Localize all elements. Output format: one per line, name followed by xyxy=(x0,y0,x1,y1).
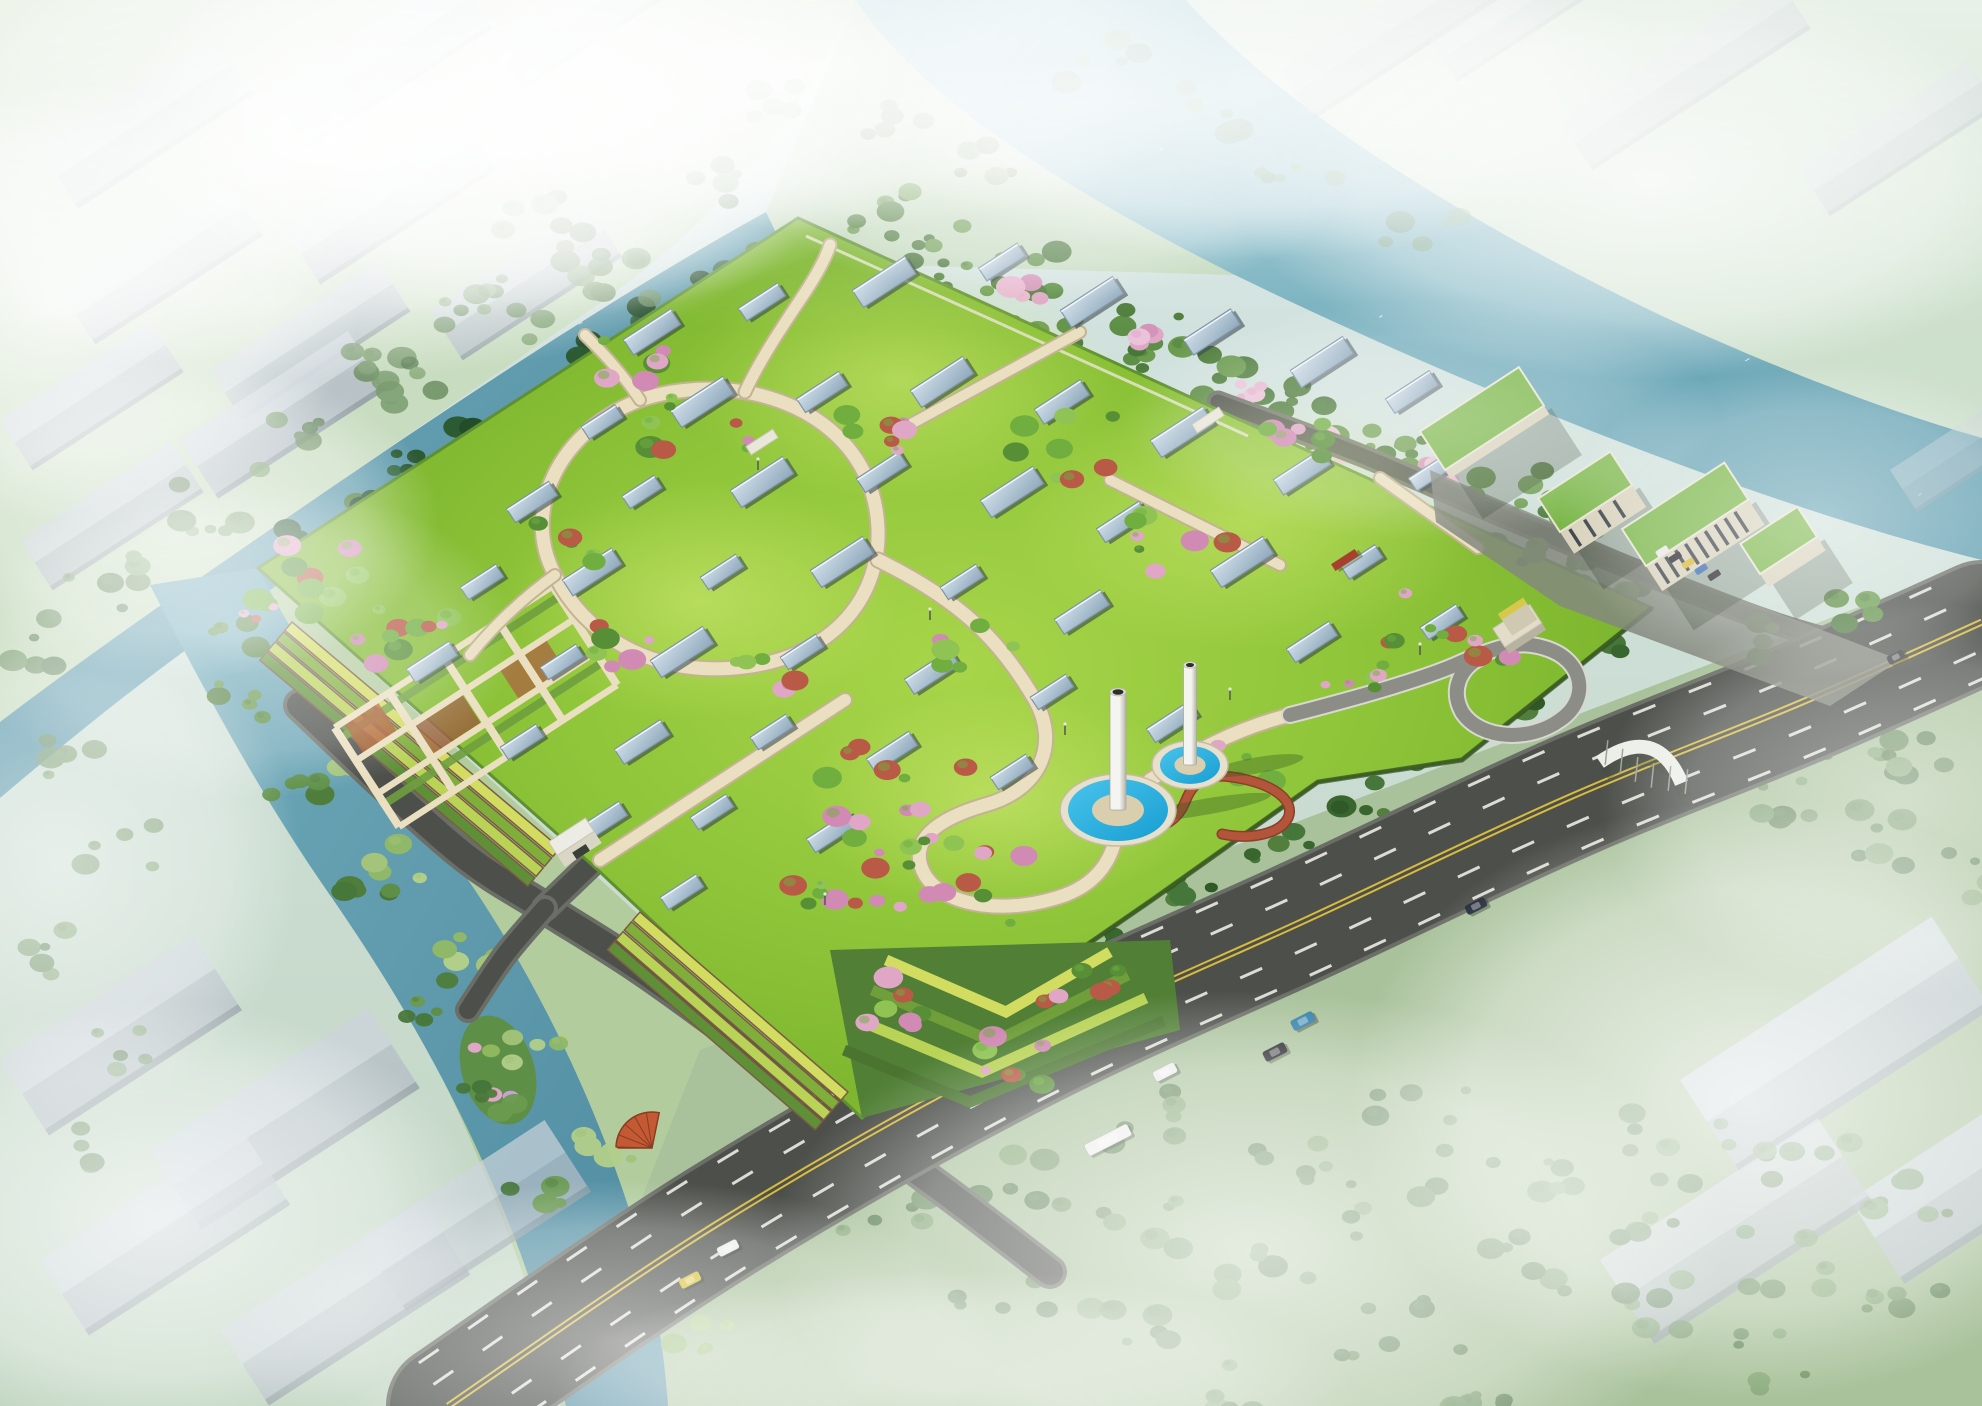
tree-blob xyxy=(1425,624,1436,632)
tree-blob xyxy=(453,932,467,942)
aerial-park-rendering xyxy=(0,0,1982,1406)
tree-blob xyxy=(874,849,884,857)
tree-blob xyxy=(943,835,964,851)
tree-highlight xyxy=(1075,965,1084,972)
tree-highlight xyxy=(668,394,673,398)
tree-highlight xyxy=(859,1016,870,1024)
tree-blob xyxy=(1054,408,1077,425)
tree-blob xyxy=(574,1136,601,1156)
tree-blob xyxy=(730,418,743,427)
tree-highlight xyxy=(1401,589,1407,593)
light-head xyxy=(1063,722,1066,725)
tree-blob xyxy=(487,1103,512,1121)
tree-blob xyxy=(1331,801,1349,814)
light-head xyxy=(928,607,931,610)
tree-blob xyxy=(664,402,676,411)
tree-highlight xyxy=(598,371,610,380)
tree-highlight xyxy=(886,437,893,442)
tree-highlight xyxy=(552,1038,561,1044)
tree-highlight xyxy=(1128,514,1138,521)
tree-highlight xyxy=(389,836,401,845)
tree-highlight xyxy=(531,518,540,524)
tree-highlight xyxy=(783,877,796,886)
tree-blob xyxy=(931,639,959,660)
light-head xyxy=(823,892,826,895)
tree-highlight xyxy=(827,808,840,818)
tree-blob xyxy=(1010,846,1037,866)
tower-cylinder xyxy=(1110,692,1126,810)
tree-highlight xyxy=(401,1011,409,1017)
tree-highlight xyxy=(903,840,913,847)
tree-blob xyxy=(970,618,990,633)
tree-blob xyxy=(1359,805,1373,815)
tree-highlight xyxy=(893,447,899,451)
tree-highlight xyxy=(412,997,419,1002)
tree-blob xyxy=(361,853,387,873)
tree-blob xyxy=(602,1144,615,1154)
tree-blob xyxy=(1090,983,1114,1001)
tower-opening xyxy=(1186,663,1194,667)
tree-blob xyxy=(1365,776,1385,791)
tree-highlight xyxy=(644,417,652,423)
tree-blob xyxy=(604,660,620,672)
tree-blob xyxy=(582,553,605,570)
tree-highlight xyxy=(957,760,968,768)
tree-blob xyxy=(436,972,458,988)
tree-highlight xyxy=(487,1090,492,1094)
tree-blob xyxy=(432,940,457,958)
tree-highlight xyxy=(1372,670,1380,676)
tree-highlight xyxy=(1112,966,1119,971)
tree-blob xyxy=(899,774,911,783)
aerial-rendering-stage xyxy=(0,0,1982,1406)
tree-blob xyxy=(1003,442,1029,461)
tree-blob xyxy=(502,1030,523,1046)
tree-highlight xyxy=(1470,636,1477,641)
tree-blob xyxy=(842,829,867,847)
tree-blob xyxy=(849,814,871,830)
tree-blob xyxy=(918,836,930,845)
tree-blob xyxy=(1169,886,1196,906)
tree-highlight xyxy=(1131,330,1141,338)
tree-blob xyxy=(618,649,646,670)
tree-highlight xyxy=(883,418,893,426)
tree-blob xyxy=(1006,641,1020,651)
tree-highlight xyxy=(1014,418,1027,428)
tree-blob xyxy=(869,895,885,907)
tree-blob xyxy=(1244,848,1261,860)
tree-blob xyxy=(800,898,816,910)
light-head xyxy=(1418,642,1421,645)
tree-blob xyxy=(1268,836,1290,852)
tree-highlight xyxy=(627,1156,632,1160)
tree-highlight xyxy=(1468,648,1481,658)
tree-blob xyxy=(1376,660,1389,670)
tree-blob xyxy=(1049,989,1069,1004)
tree-highlight xyxy=(1132,532,1138,537)
tower-opening xyxy=(1113,689,1124,695)
island-planting xyxy=(468,1043,482,1053)
tree-blob xyxy=(848,898,863,909)
tree-blob xyxy=(1145,563,1166,578)
tree-highlight xyxy=(1345,680,1350,684)
tree-blob xyxy=(754,653,770,665)
tree-highlight xyxy=(640,438,653,448)
tree-blob xyxy=(974,846,992,859)
tree-blob xyxy=(893,902,907,912)
tree-highlight xyxy=(477,1093,484,1098)
tree-blob xyxy=(874,1000,897,1017)
tree-highlight xyxy=(896,989,905,996)
tree-blob xyxy=(381,884,401,899)
tree-highlight xyxy=(505,1056,515,1063)
tree-highlight xyxy=(1063,472,1074,480)
tree-blob xyxy=(833,405,860,425)
tree-highlight xyxy=(589,647,598,654)
island-planting xyxy=(482,1044,500,1057)
tree-blob xyxy=(331,882,357,901)
tree-blob xyxy=(456,1083,471,1094)
tree-blob xyxy=(529,1039,545,1051)
tree-blob xyxy=(952,662,967,673)
tree-blob xyxy=(931,883,956,902)
tree-blob xyxy=(632,371,659,391)
light-head xyxy=(756,457,759,460)
tree-blob xyxy=(898,1013,921,1030)
tree-blob xyxy=(651,440,676,459)
tower-cylinder xyxy=(1184,665,1197,765)
tree-highlight xyxy=(1614,646,1622,652)
tree-highlight xyxy=(562,530,573,538)
tree-blob xyxy=(1303,841,1315,850)
tree-highlight xyxy=(575,1129,586,1137)
tree-blob xyxy=(1205,883,1218,893)
tree-blob xyxy=(1436,630,1448,639)
tree-blob xyxy=(892,421,917,440)
tree-blob xyxy=(813,767,842,789)
tree-blob xyxy=(1106,411,1120,422)
tree-blob xyxy=(415,1013,433,1026)
tree-highlight xyxy=(846,425,855,432)
light-head xyxy=(1228,687,1231,690)
tree-highlight xyxy=(1136,546,1141,549)
tree-blob xyxy=(1005,919,1016,927)
tree-blob xyxy=(1046,439,1073,459)
tree-highlight xyxy=(1138,364,1144,368)
tree-blob xyxy=(861,858,889,879)
tree-blob xyxy=(974,889,992,902)
tree-highlight xyxy=(902,806,909,811)
tree-highlight xyxy=(415,874,421,879)
tree-highlight xyxy=(878,762,890,771)
fog-patch xyxy=(750,60,1350,300)
tree-blob xyxy=(910,802,931,817)
tree-blob xyxy=(423,381,449,400)
tree-blob xyxy=(1181,530,1209,551)
tree-blob xyxy=(431,1007,443,1016)
tree-highlight xyxy=(1218,534,1230,543)
fog-patch xyxy=(1120,300,1720,540)
tree-blob xyxy=(1368,682,1382,692)
tree-highlight xyxy=(650,355,660,362)
tree-blob xyxy=(644,636,654,644)
tree-blob xyxy=(737,655,757,670)
tree-highlight xyxy=(843,747,852,753)
tree-blob xyxy=(1320,681,1330,688)
tree-highlight xyxy=(1387,635,1396,642)
tree-blob xyxy=(781,670,808,690)
tree-highlight xyxy=(817,881,823,885)
tree-blob xyxy=(903,860,916,869)
tree-blob xyxy=(874,966,904,988)
tree-blob xyxy=(1094,459,1118,476)
tree-blob xyxy=(591,628,620,649)
tree-blob xyxy=(956,873,982,892)
tree-highlight xyxy=(1038,996,1046,1002)
